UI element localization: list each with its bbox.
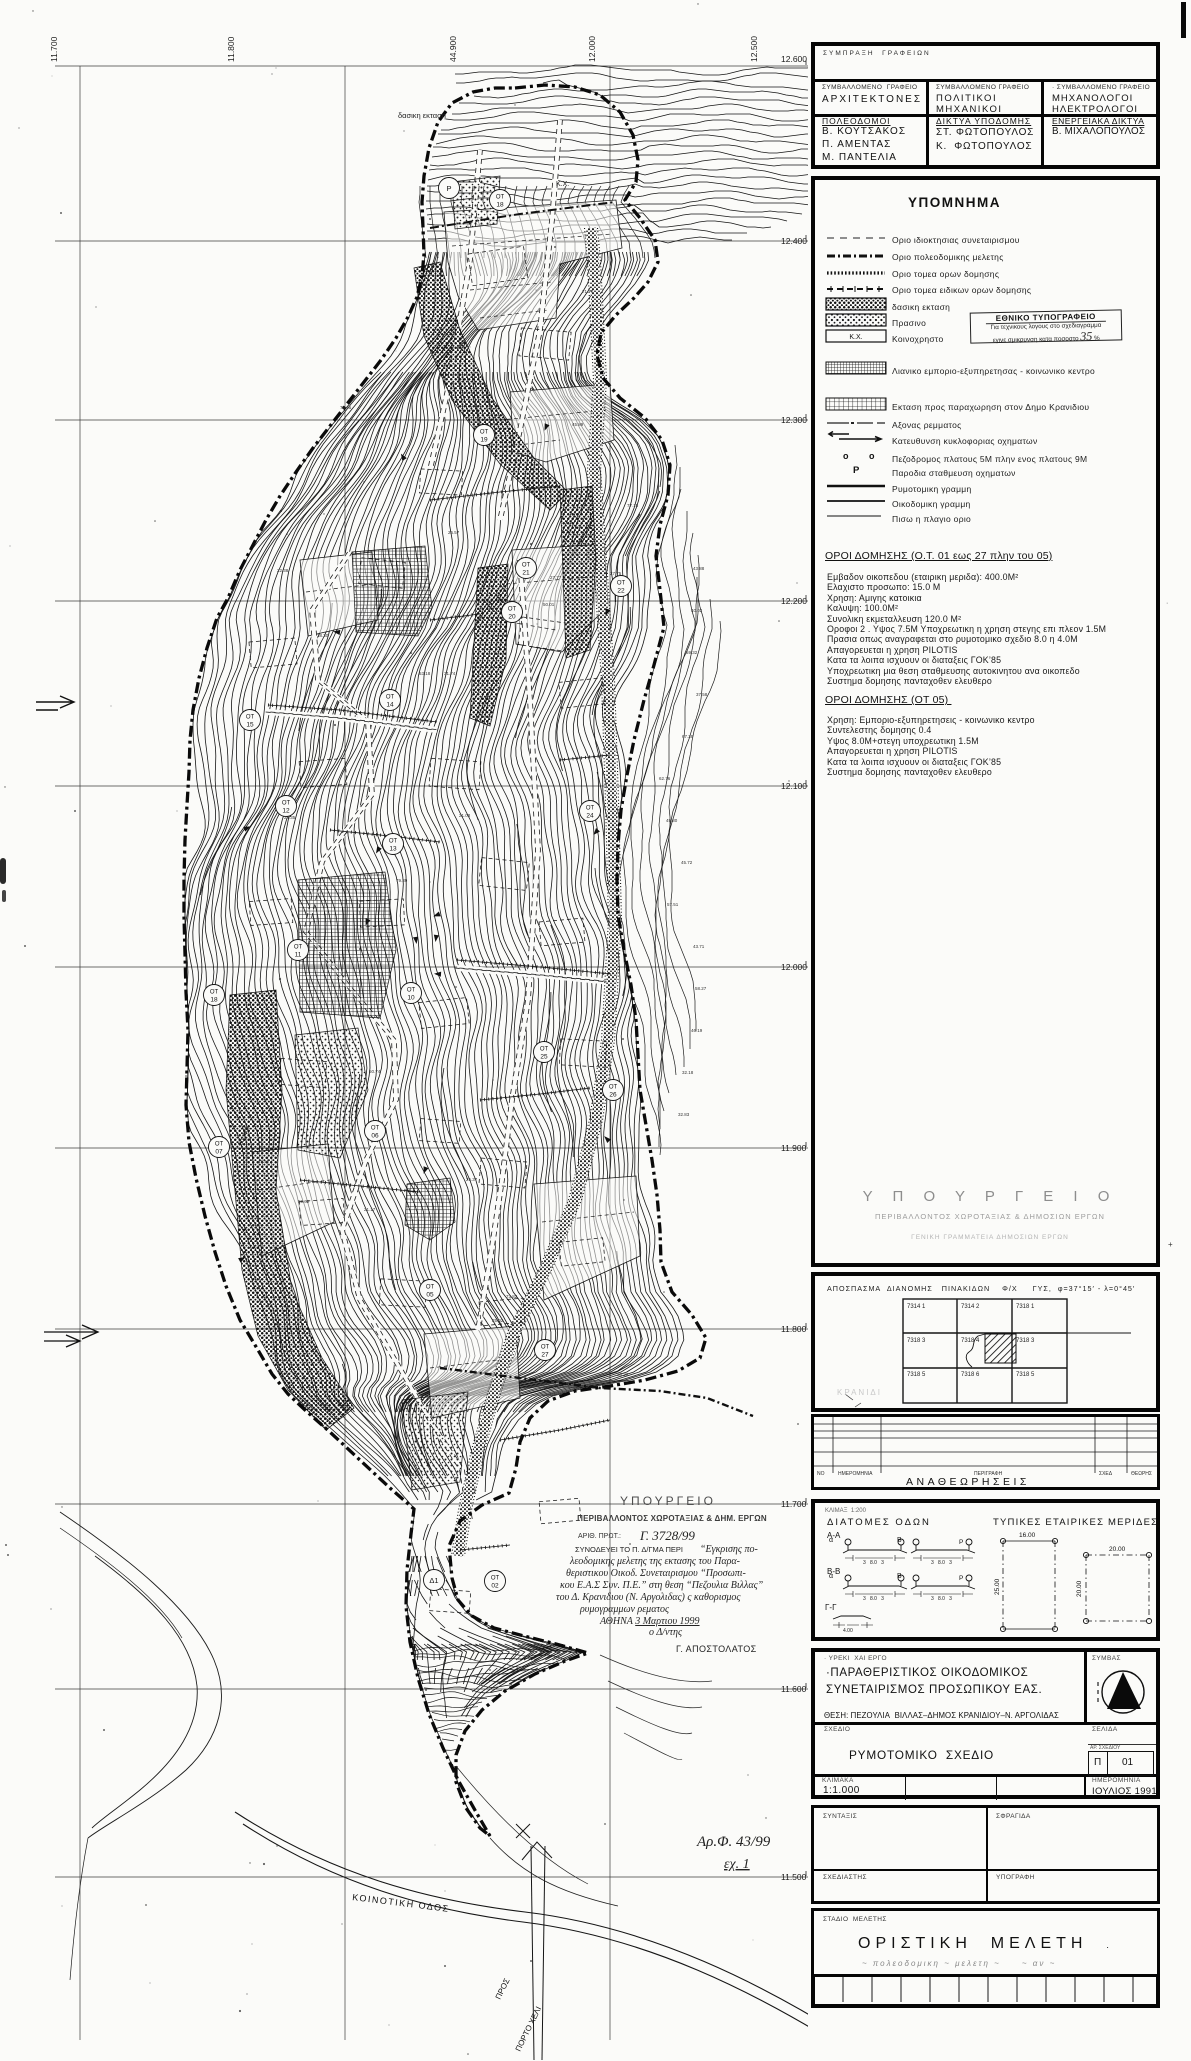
svg-text:22: 22 bbox=[617, 588, 625, 595]
svg-text:ΟΤ: ΟΤ bbox=[491, 1576, 500, 1582]
svg-text:Δ1: Δ1 bbox=[429, 1576, 438, 1585]
svg-text:7318 5: 7318 5 bbox=[1016, 1372, 1035, 1378]
svg-text:7318 4: 7318 4 bbox=[961, 1338, 980, 1344]
svg-text:ΣΥΝΟΔΕΥΕΙ ΤΟ Π. Δ/ΓΜΑ ΠΕΡΙ: ΣΥΝΟΔΕΥΕΙ ΤΟ Π. Δ/ΓΜΑ ΠΕΡΙ bbox=[575, 1545, 683, 1554]
svg-text:ΟΤ: ΟΤ bbox=[282, 801, 291, 807]
svg-text:ΘΕΩΡΗΣ: ΘΕΩΡΗΣ bbox=[1131, 1471, 1152, 1477]
svg-text:50.74: 50.74 bbox=[369, 1069, 381, 1074]
svg-text:57.51: 57.51 bbox=[667, 902, 679, 907]
svg-text:22.38: 22.38 bbox=[277, 568, 289, 573]
svg-text:27.75: 27.75 bbox=[610, 571, 622, 576]
svg-text:12.300: 12.300 bbox=[781, 415, 807, 425]
svg-text:ΟΤ: ΟΤ bbox=[246, 715, 255, 721]
svg-text:του Δ. Κρανιδιου (Ν. Αργολιδας: του Δ. Κρανιδιου (Ν. Αργολιδας) ς καθορι… bbox=[556, 1592, 741, 1603]
svg-text:46.19: 46.19 bbox=[691, 1028, 703, 1033]
svg-text:20.00: 20.00 bbox=[1109, 1546, 1126, 1553]
svg-text:ΣΧΕΔ: ΣΧΕΔ bbox=[1099, 1471, 1113, 1477]
svg-text:ΠΟΡΤΟ ΧΕΛΙ: ΠΟΡΤΟ ΧΕΛΙ bbox=[514, 2005, 543, 2053]
svg-text:ΠΡΟΣ: ΠΡΟΣ bbox=[494, 1977, 512, 2001]
svg-text:ΑΘΗΝΑ 3 Μαρτιου 1999: ΑΘΗΝΑ 3 Μαρτιου 1999 bbox=[599, 1616, 700, 1627]
svg-text:7318 5: 7318 5 bbox=[907, 1372, 926, 1378]
svg-text:53.18: 53.18 bbox=[419, 671, 431, 676]
svg-text:Γ. ΑΠΟΣΤΟΛΑΤΟΣ: Γ. ΑΠΟΣΤΟΛΑΤΟΣ bbox=[676, 1644, 757, 1654]
svg-text:25.02: 25.02 bbox=[492, 1318, 504, 1323]
svg-text:ΗΜΕΡΟΜΗΝΙΑ: ΗΜΕΡΟΜΗΝΙΑ bbox=[838, 1471, 873, 1477]
svg-text:40.02: 40.02 bbox=[691, 608, 703, 613]
svg-text:75.15: 75.15 bbox=[340, 405, 352, 410]
svg-text:44.900: 44.900 bbox=[448, 36, 458, 62]
svg-text:o: o bbox=[869, 451, 875, 461]
svg-text:69.14: 69.14 bbox=[406, 1472, 418, 1477]
svg-text:25: 25 bbox=[540, 1054, 548, 1061]
svg-text:7314 1: 7314 1 bbox=[907, 1304, 926, 1310]
svg-text:49.80: 49.80 bbox=[666, 818, 678, 823]
svg-text:59.62: 59.62 bbox=[298, 1199, 310, 1204]
svg-text:67.39: 67.39 bbox=[682, 734, 694, 739]
svg-text:12.000: 12.000 bbox=[781, 962, 807, 972]
svg-text:25.00: 25.00 bbox=[994, 1578, 1001, 1595]
svg-text:77.15: 77.15 bbox=[627, 503, 639, 508]
svg-text:7318 3: 7318 3 bbox=[907, 1338, 926, 1344]
svg-text:25.37: 25.37 bbox=[466, 1177, 478, 1182]
svg-text:24: 24 bbox=[586, 813, 594, 820]
svg-text:19: 19 bbox=[480, 437, 488, 444]
svg-text:20.00: 20.00 bbox=[1076, 1580, 1083, 1597]
svg-text:ΝΟ: ΝΟ bbox=[817, 1471, 825, 1477]
svg-text:27: 27 bbox=[541, 1352, 549, 1359]
svg-text:06: 06 bbox=[371, 1133, 379, 1140]
svg-text:λεοδομικης μελετης της εκτασης: λεοδομικης μελετης της εκτασης του Παρα- bbox=[569, 1556, 740, 1567]
svg-text:14: 14 bbox=[386, 702, 394, 709]
svg-text:18: 18 bbox=[210, 997, 218, 1004]
svg-text:37.58: 37.58 bbox=[696, 692, 708, 697]
svg-text:ΟΤ: ΟΤ bbox=[541, 1345, 550, 1351]
svg-text:11.600: 11.600 bbox=[781, 1684, 807, 1694]
svg-text:Ρ: Ρ bbox=[959, 1539, 963, 1546]
svg-text:38.30: 38.30 bbox=[317, 633, 329, 638]
svg-text:31.74: 31.74 bbox=[444, 671, 456, 676]
svg-text:ΟΤ: ΟΤ bbox=[617, 581, 626, 587]
svg-text:59.32: 59.32 bbox=[686, 650, 698, 655]
svg-text:62.76: 62.76 bbox=[659, 776, 671, 781]
svg-text:11.500: 11.500 bbox=[781, 1872, 807, 1882]
svg-text:θεριστικου Οικοδ. Συνεταιρισμο: θεριστικου Οικοδ. Συνεταιρισμου “Προσωπι… bbox=[566, 1568, 746, 1579]
svg-text:73.82: 73.82 bbox=[506, 1294, 518, 1299]
svg-text:o: o bbox=[843, 451, 849, 461]
svg-text:12.600: 12.600 bbox=[781, 54, 807, 64]
svg-text:7318 3: 7318 3 bbox=[1016, 1338, 1035, 1344]
svg-text:15: 15 bbox=[246, 722, 254, 729]
svg-text:43.88: 43.88 bbox=[693, 566, 705, 571]
svg-text:κου Ε.Α.Σ Συν. Π.Ε.” στη θεση: κου Ε.Α.Σ Συν. Π.Ε.” στη θεση “Πεζουλια … bbox=[560, 1580, 764, 1591]
svg-text:45.52: 45.52 bbox=[258, 1159, 270, 1164]
svg-text:7314 2: 7314 2 bbox=[961, 1304, 980, 1310]
svg-text:16.00: 16.00 bbox=[1019, 1532, 1036, 1539]
svg-text:12.400: 12.400 bbox=[781, 236, 807, 246]
svg-text:79.39: 79.39 bbox=[396, 878, 408, 883]
svg-text:43.71: 43.71 bbox=[693, 944, 705, 949]
svg-text:45.89: 45.89 bbox=[572, 422, 584, 427]
svg-text:ΚΟΙΝΟΤΙΚΗ ΟΔΟΣ: ΚΟΙΝΟΤΙΚΗ ΟΔΟΣ bbox=[352, 1892, 450, 1914]
svg-text:7318 1: 7318 1 bbox=[1016, 1304, 1035, 1310]
svg-text:11.800: 11.800 bbox=[781, 1324, 807, 1334]
svg-text:11.700: 11.700 bbox=[781, 1499, 807, 1509]
svg-text:Κ.Χ.: Κ.Χ. bbox=[849, 334, 862, 341]
svg-text:11.800: 11.800 bbox=[226, 36, 236, 62]
svg-text:32.83: 32.83 bbox=[678, 1112, 690, 1117]
svg-text:26: 26 bbox=[609, 1092, 617, 1099]
svg-text:Γ. 3728/99: Γ. 3728/99 bbox=[639, 1528, 695, 1543]
svg-text:32.18: 32.18 bbox=[682, 1070, 694, 1075]
svg-text:ΟΤ: ΟΤ bbox=[586, 806, 595, 812]
svg-text:ΟΤ: ΟΤ bbox=[426, 1285, 435, 1291]
svg-text:13: 13 bbox=[389, 846, 397, 853]
svg-text:50.01: 50.01 bbox=[543, 602, 555, 607]
svg-text:28.23: 28.23 bbox=[617, 1372, 629, 1377]
svg-text:ΟΤ: ΟΤ bbox=[609, 1085, 618, 1091]
svg-text:3 8.0 3: 3 8.0 3 bbox=[931, 1596, 952, 1601]
svg-text:20: 20 bbox=[508, 614, 516, 621]
svg-text:21: 21 bbox=[522, 570, 530, 577]
svg-text:ΟΤ: ΟΤ bbox=[496, 195, 505, 201]
svg-text:ΟΤ: ΟΤ bbox=[540, 1047, 549, 1053]
svg-text:Ρ: Ρ bbox=[446, 184, 451, 193]
svg-text:12.200: 12.200 bbox=[781, 596, 807, 606]
svg-text:δασικη εκταση: δασικη εκταση bbox=[398, 111, 446, 120]
svg-text:12.000: 12.000 bbox=[587, 36, 597, 62]
svg-text:45.72: 45.72 bbox=[681, 860, 693, 865]
svg-text:ΟΤ: ΟΤ bbox=[371, 1126, 380, 1132]
svg-text:07: 07 bbox=[215, 1149, 223, 1156]
svg-text:3 8.0 3: 3 8.0 3 bbox=[931, 1560, 952, 1565]
svg-text:3 8.0 3: 3 8.0 3 bbox=[863, 1596, 884, 1601]
svg-text:ο Δ/ντης: ο Δ/ντης bbox=[649, 1627, 683, 1638]
svg-text:12.500: 12.500 bbox=[749, 36, 759, 62]
svg-text:10: 10 bbox=[407, 995, 415, 1002]
svg-text:ΟΤ: ΟΤ bbox=[407, 988, 416, 994]
svg-text:εχ. 1: εχ. 1 bbox=[724, 1857, 750, 1872]
svg-text:11.700: 11.700 bbox=[49, 36, 59, 62]
svg-text:21.08: 21.08 bbox=[459, 813, 471, 818]
svg-text:71.77: 71.77 bbox=[582, 289, 594, 294]
svg-text:26.57: 26.57 bbox=[448, 530, 460, 535]
svg-text:ΑΡΙΘ. ΠΡΩΤ.:: ΑΡΙΘ. ΠΡΩΤ.: bbox=[578, 1533, 621, 1540]
svg-text:4.00: 4.00 bbox=[843, 1628, 853, 1633]
svg-text:12.100: 12.100 bbox=[781, 781, 807, 791]
svg-text:ΟΤ: ΟΤ bbox=[386, 695, 395, 701]
svg-text:ΟΤ: ΟΤ bbox=[522, 563, 531, 569]
svg-text:ΟΤ: ΟΤ bbox=[210, 990, 219, 996]
svg-text:ρυμογραμμων ρεματος: ρυμογραμμων ρεματος bbox=[579, 1604, 670, 1615]
svg-text:ΟΤ: ΟΤ bbox=[215, 1142, 224, 1148]
svg-text:Ρ: Ρ bbox=[959, 1575, 963, 1582]
svg-text:Κ.Χ.: Κ.Χ. bbox=[556, 181, 569, 188]
svg-text:18: 18 bbox=[496, 202, 504, 209]
svg-text:02: 02 bbox=[491, 1583, 499, 1590]
svg-text:27.77: 27.77 bbox=[550, 575, 562, 580]
svg-text:11.900: 11.900 bbox=[781, 1143, 807, 1153]
svg-text:Αρ.Φ. 43/99: Αρ.Φ. 43/99 bbox=[696, 1834, 771, 1850]
svg-text:Ρ: Ρ bbox=[853, 465, 860, 476]
svg-text:12: 12 bbox=[282, 808, 290, 815]
svg-text:7318 6: 7318 6 bbox=[961, 1372, 980, 1378]
svg-text:ΠΕΡΙΒΑΛΛΟΝΤΟΣ ΧΩΡΟΤΑΞΙΑΣ & ΔΗΜ: ΠΕΡΙΒΑΛΛΟΝΤΟΣ ΧΩΡΟΤΑΞΙΑΣ & ΔΗΜ. ΕΡΓΩΝ bbox=[577, 1514, 767, 1523]
svg-text:11: 11 bbox=[295, 952, 302, 959]
svg-text:3 8.0 3: 3 8.0 3 bbox=[863, 1560, 884, 1565]
svg-text:05: 05 bbox=[426, 1292, 434, 1299]
svg-text:ΟΤ: ΟΤ bbox=[294, 945, 303, 951]
svg-text:21.17: 21.17 bbox=[364, 1207, 376, 1212]
svg-text:24.35: 24.35 bbox=[284, 815, 296, 820]
svg-text:ΥΠΟΥΡΓΕΙΟ: ΥΠΟΥΡΓΕΙΟ bbox=[620, 1494, 716, 1508]
svg-text:ΟΤ: ΟΤ bbox=[389, 839, 398, 845]
svg-text:ΟΤ: ΟΤ bbox=[480, 430, 489, 436]
svg-text:58.27: 58.27 bbox=[695, 986, 707, 991]
svg-text:ΟΤ: ΟΤ bbox=[508, 607, 517, 613]
svg-text:“Εγκρισης πο-: “Εγκρισης πο- bbox=[700, 1544, 758, 1555]
